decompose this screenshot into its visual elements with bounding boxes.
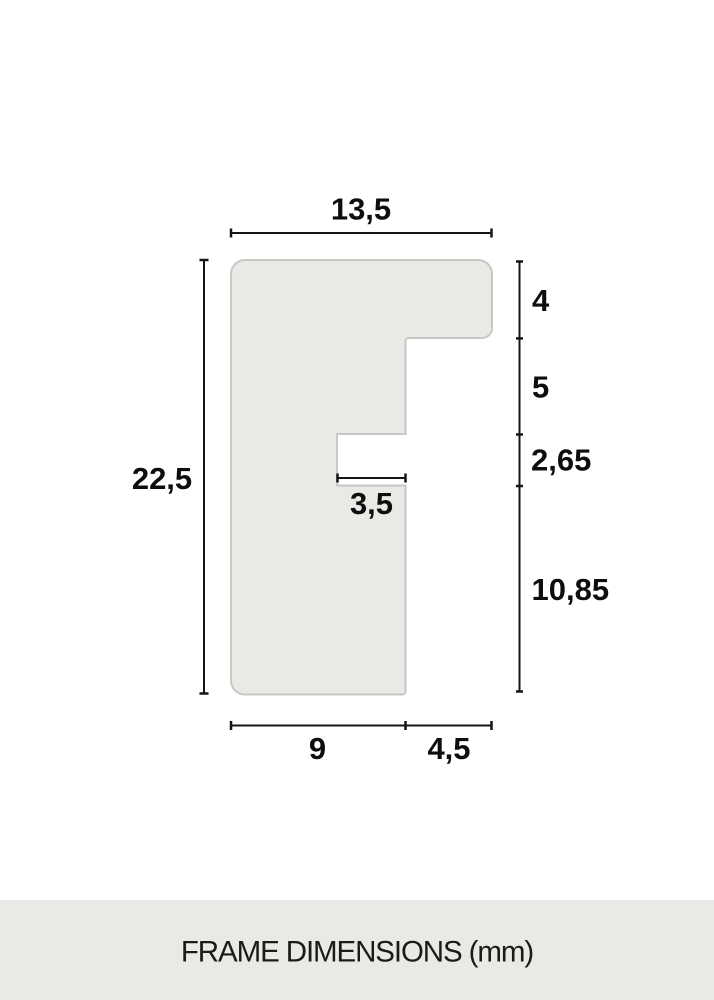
svg-text:3,5: 3,5 [350, 486, 393, 521]
svg-text:4,5: 4,5 [427, 731, 470, 766]
svg-text:4: 4 [532, 283, 550, 318]
svg-text:2,65: 2,65 [531, 443, 591, 478]
svg-text:10,85: 10,85 [532, 572, 610, 607]
svg-text:FRAME DIMENSIONS (mm): FRAME DIMENSIONS (mm) [181, 936, 533, 969]
svg-text:22,5: 22,5 [132, 461, 192, 496]
svg-text:5: 5 [532, 370, 549, 405]
svg-text:9: 9 [309, 731, 326, 766]
svg-text:13,5: 13,5 [331, 192, 391, 227]
